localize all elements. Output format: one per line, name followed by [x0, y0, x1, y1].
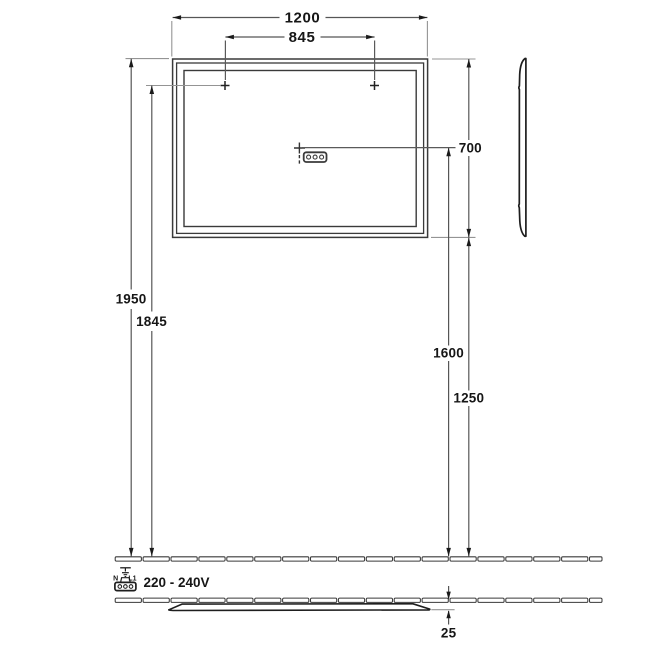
svg-text:N: N: [113, 576, 118, 583]
svg-text:1845: 1845: [136, 314, 167, 329]
svg-text:845: 845: [289, 29, 316, 46]
svg-text:1200: 1200: [285, 10, 321, 27]
svg-text:1250: 1250: [453, 391, 484, 406]
svg-text:25: 25: [441, 626, 457, 641]
svg-text:1600: 1600: [433, 346, 464, 361]
svg-text:1950: 1950: [116, 292, 147, 307]
svg-text:L1: L1: [128, 576, 136, 583]
svg-text:220 - 240V: 220 - 240V: [144, 575, 210, 590]
svg-text:700: 700: [459, 141, 482, 156]
